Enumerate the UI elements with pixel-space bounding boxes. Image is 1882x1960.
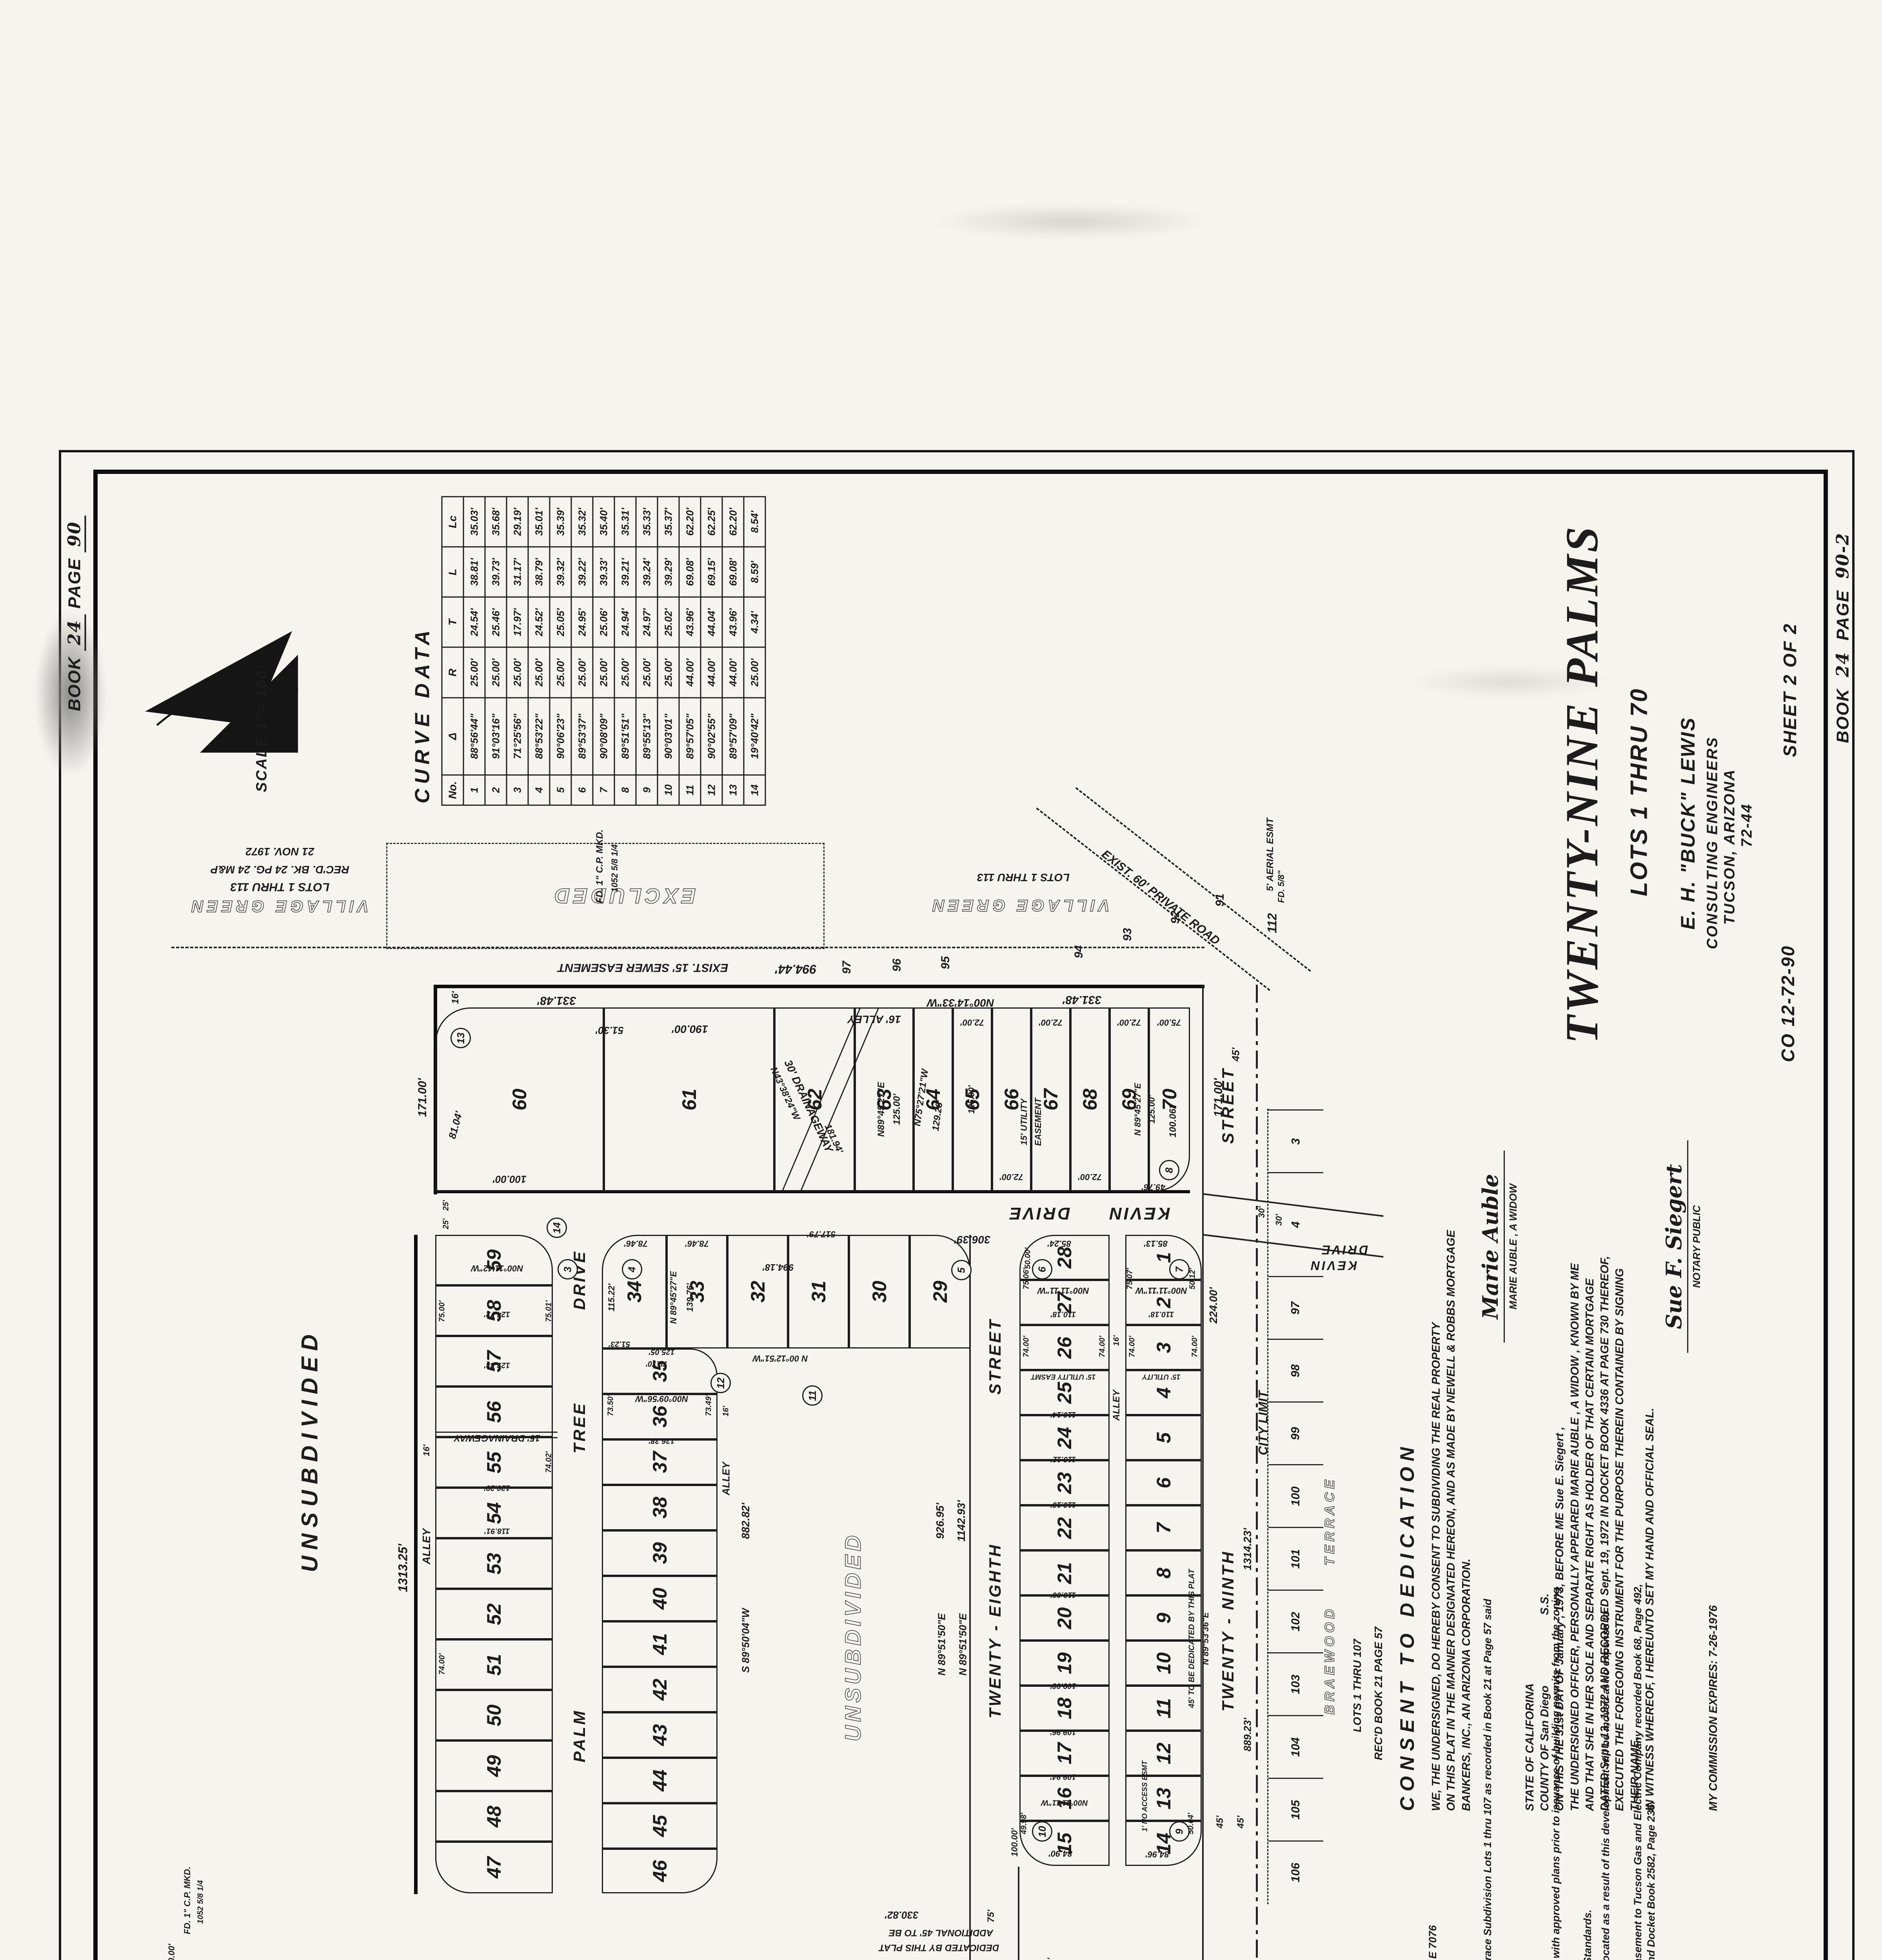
- map-label: 331.48': [1063, 993, 1102, 1006]
- map-label: N 89°53'36"E: [1201, 1612, 1211, 1665]
- map-label: CITY LIMIT: [1256, 1391, 1271, 1455]
- curve-table-row: 14 19°40'42" 25.00' 4.34' 8.59' 8.54': [744, 497, 765, 805]
- map-label: 51.23': [609, 1339, 630, 1348]
- book-label: BOOK: [65, 656, 84, 711]
- general-note-item: 2. ○ Indicates ½" steel pin set: [1444, 1584, 1458, 1960]
- map-label: REC'D. BK. 24 PG. 24 M&P: [211, 863, 349, 876]
- map-label: N 89°51'50"E: [957, 1613, 969, 1675]
- curve-marker: 11: [802, 1385, 823, 1406]
- map-label: 15' UTILITY EASMT: [1031, 1373, 1096, 1381]
- curve-marker: 8: [1159, 1160, 1179, 1180]
- map-label: 889.23': [1242, 1718, 1254, 1751]
- curve-delta: 89°57'05": [679, 698, 701, 775]
- general-note-item: 8. The Developer will pave streets to Pi…: [1581, 1584, 1595, 1960]
- curve-tangent: 24.94': [614, 597, 636, 647]
- signature-block-notary: Sue F. Siegert NOTARY PUBLIC: [1661, 1105, 1703, 1388]
- plat-subtitle-lots: LOTS 1 THRU 70: [1626, 688, 1653, 897]
- curve-length: 69.08': [722, 547, 744, 597]
- curve-length: 39.33': [593, 547, 614, 597]
- general-note-item: 4. Bearing based on the north line of Br…: [1481, 1584, 1508, 1960]
- map-label: TWENTY - EIGHTH: [986, 1543, 1005, 1719]
- curve-data-title: CURVE DATA: [411, 496, 434, 804]
- col-tangent: T: [442, 597, 463, 647]
- map-label: N00°11'11"W: [1041, 1798, 1088, 1807]
- curve-table-row: 3 71°25'56" 25.00' 17.97' 31.17' 29.19': [507, 497, 528, 805]
- owner-signature-handwritten: Marie Auble: [1478, 1151, 1505, 1343]
- curve-chord: 35.33': [636, 497, 658, 547]
- page-value-handwritten: 90-2: [1833, 527, 1855, 584]
- curve-no: 9: [636, 775, 658, 805]
- map-label: LOTS 1 THRU 113: [231, 880, 330, 893]
- book-label: BOOK: [1833, 688, 1853, 743]
- curve-marker-number: 4: [626, 1267, 638, 1272]
- map-label: 75.00': [1157, 1017, 1181, 1027]
- lot-number: 46: [649, 1860, 671, 1882]
- lot-number: 104: [1289, 1737, 1303, 1757]
- lot-number: 68: [1079, 1089, 1101, 1111]
- page-label: PAGE: [1833, 590, 1853, 641]
- map-label: 15' UTILITY: [1142, 1373, 1180, 1381]
- map-label: 50.12': [1188, 1268, 1197, 1290]
- curve-length: 69.08': [679, 547, 701, 597]
- lot-parcel: 47: [435, 1842, 553, 1893]
- curve-length: 38.79': [528, 547, 550, 597]
- lot-number: 41: [649, 1633, 671, 1655]
- curve-delta: 90°02'55": [701, 698, 722, 775]
- map-label: 16': [1112, 1335, 1121, 1346]
- lot-number: 40: [649, 1588, 671, 1610]
- curve-marker-number: 9: [1174, 1829, 1186, 1834]
- map-label: EASEMENT: [1033, 1098, 1043, 1146]
- lot-number: 29: [929, 1281, 952, 1303]
- map-label: 118.91': [485, 1526, 510, 1535]
- map-label: 124.72': [484, 1310, 510, 1319]
- map-label: 190.00': [672, 1023, 708, 1035]
- lot-parcel: 106: [1268, 1840, 1323, 1903]
- map-label: N00°11'11"W: [1037, 1285, 1089, 1296]
- curve-radius: 25.00': [463, 648, 485, 698]
- curve-tangent: 44.04': [701, 597, 722, 647]
- map-label: 30': [1274, 1214, 1284, 1226]
- map-label: ALLEY: [420, 1528, 433, 1564]
- lot-number: 97: [1289, 1301, 1303, 1314]
- lot-parcel: 31: [788, 1235, 849, 1348]
- curve-radius: 25.00': [744, 648, 765, 698]
- lot-parcel: 101: [1268, 1527, 1323, 1590]
- lot-parcel: 50: [435, 1690, 553, 1740]
- lot-number: 28: [1053, 1247, 1076, 1269]
- lot-number: 11: [1152, 1698, 1175, 1719]
- curve-chord: 35.39': [550, 497, 571, 547]
- lot-number: 50: [483, 1704, 505, 1726]
- lot-parcel: 49: [435, 1740, 553, 1791]
- curve-delta: 71°25'56": [507, 698, 528, 775]
- map-label: 1052 5/8 1/4: [196, 1880, 205, 1924]
- curve-table-row: 2 91°03'16" 25.00' 25.46' 39.73' 35.68': [485, 497, 507, 805]
- curve-tangent: 24.97': [636, 597, 658, 647]
- map-label: 126.38': [649, 1436, 675, 1445]
- curve-chord: 62.20': [679, 497, 701, 547]
- lot-number: 53: [483, 1553, 505, 1575]
- map-label: N 89°45'27"E: [1133, 1083, 1143, 1136]
- lot-number: 105: [1289, 1800, 1303, 1819]
- lot-parcel: 55: [435, 1437, 553, 1488]
- map-label: ADDITIONAL 45' TO BE: [889, 1927, 993, 1938]
- map-label: 74.00': [1098, 1336, 1107, 1357]
- map-label: 72.00': [961, 1017, 984, 1027]
- map-label: 45' TO BE DEDICATED BY THIS PLAT: [1188, 1569, 1197, 1708]
- map-label: VILLAGE GREEN: [929, 896, 1110, 915]
- lot-parcel: 30: [849, 1235, 910, 1348]
- book-page-stamp-right: BOOK 24 PAGE 90-2: [1833, 527, 1853, 743]
- map-label: 30': [1046, 1958, 1055, 1960]
- map-label: 110.18': [1051, 1310, 1076, 1319]
- map-label: 517.79': [807, 1229, 836, 1239]
- lot-parcel: 7: [1125, 1505, 1202, 1550]
- notary-signature-handwritten: Sue F. Siegert: [1661, 1140, 1688, 1352]
- lot-parcel: 103: [1268, 1652, 1323, 1715]
- lot-number: 22: [1053, 1517, 1076, 1539]
- map-label: 100.00': [167, 1944, 177, 1960]
- lot-parcel: 69: [1110, 1007, 1149, 1192]
- lot-number: 10: [1152, 1652, 1175, 1674]
- curve-data-table: No. Δ R T L Lc 1 88°56'44" 25.00' 24.54'…: [441, 496, 766, 806]
- curve-no: 1: [463, 775, 485, 805]
- map-label: EXCLUDED: [551, 884, 696, 908]
- plat-sheet: BOOK 24 PAGE 90 BOOK 24 PAGE 90-2 SCALE …: [0, 0, 1882, 1960]
- curve-marker: 6: [1032, 1259, 1052, 1279]
- map-label: 16': [421, 1445, 432, 1456]
- curve-tangent: 25.06': [593, 597, 614, 647]
- map-label: 139.76': [685, 1283, 695, 1312]
- curve-delta: 88°56'44": [463, 698, 485, 775]
- lot-number: 47: [483, 1857, 505, 1878]
- curve-table-row: 7 90°08'09" 25.00' 25.06' 39.33' 35.40': [593, 497, 614, 805]
- curve-length: 39.22': [571, 547, 593, 597]
- lot-number: 30: [868, 1281, 891, 1303]
- map-label: 72.00': [1000, 1172, 1023, 1182]
- map-label: S 89°50'04"W: [740, 1608, 752, 1673]
- curve-marker: 12: [710, 1373, 731, 1393]
- lot-number: 5: [1152, 1432, 1175, 1443]
- map-label: 16': [450, 991, 461, 1004]
- curve-chord: 62.20': [722, 497, 744, 547]
- map-label: 93: [1121, 928, 1134, 941]
- map-label: TWENTY - NINTH: [1219, 1550, 1237, 1711]
- curve-delta: 91°03'16": [485, 698, 507, 775]
- general-notes-heading: GENERAL NOTES: [1396, 1584, 1417, 1960]
- curve-chord: 29.19': [507, 497, 528, 547]
- map-label: BRAEWOOD: [1322, 1606, 1338, 1715]
- lot-parcel: 48: [435, 1791, 553, 1842]
- curve-tangent: 24.95': [571, 597, 593, 647]
- page-value-handwritten: 90: [65, 516, 86, 552]
- lot-number: 34: [623, 1281, 646, 1303]
- curve-marker: 14: [547, 1218, 567, 1238]
- map-label: 75.06': [1022, 1268, 1031, 1290]
- map-label: 74.00': [1022, 1336, 1031, 1357]
- map-label: 15' DRAINAGEWAY: [454, 1432, 540, 1443]
- general-note-item: 6. Miles of new streets = 0.95 mile: [1531, 1584, 1544, 1960]
- curve-tangent: 17.97': [507, 597, 528, 647]
- curve-length: 39.24': [636, 547, 658, 597]
- lot-number: 9: [1152, 1613, 1175, 1624]
- book-value-handwritten: 24: [65, 614, 86, 651]
- lot-number: 19: [1053, 1652, 1076, 1674]
- lot-parcel: 29: [910, 1235, 970, 1348]
- curve-no: 3: [507, 775, 528, 805]
- lot-number: 37: [649, 1451, 671, 1473]
- map-label: 94: [1072, 945, 1086, 958]
- map-label: STREET: [1219, 1067, 1237, 1144]
- map-label: 73.50': [607, 1395, 616, 1416]
- curve-radius: 25.00': [485, 648, 507, 698]
- lot-parcel: 100: [1268, 1464, 1323, 1527]
- col-delta: Δ: [442, 698, 463, 775]
- lot-parcel: 44: [602, 1758, 718, 1803]
- curve-table-row: 12 90°02'55" 44.00' 44.04' 69.15' 62.25': [701, 497, 722, 805]
- curve-marker-number: 12: [714, 1377, 727, 1389]
- lot-parcel: 45: [602, 1803, 718, 1849]
- map-label: 100.00': [1010, 1828, 1020, 1857]
- curve-marker: 4: [622, 1259, 642, 1279]
- curve-data-block: CURVE DATA No. Δ R T L Lc 1 88°56'44" 25…: [411, 496, 797, 806]
- map-label: 123.33': [484, 1361, 510, 1370]
- lot-number: 43: [649, 1724, 671, 1746]
- curve-table-row: 13 89°57'09" 44.00' 43.96' 69.08' 62.20': [722, 497, 744, 805]
- engineer-city: TUCSON, ARIZONA: [1722, 769, 1738, 925]
- lot-number: 2: [1152, 1297, 1175, 1308]
- lot-parcel: 32: [727, 1235, 788, 1348]
- lot-parcel: 22: [1019, 1505, 1110, 1550]
- map-label: KEVIN: [1108, 1203, 1170, 1223]
- scan-smudge: [933, 204, 1208, 239]
- curve-marker-number: 5: [956, 1267, 968, 1273]
- curve-length: 39.32': [550, 547, 571, 597]
- lot-parcel: 51: [435, 1639, 553, 1690]
- curve-no: 10: [658, 775, 679, 805]
- lot-parcel: 17: [1019, 1731, 1110, 1776]
- curve-radius: 25.00': [550, 648, 571, 698]
- map-label: 100.00': [493, 1173, 527, 1185]
- map-label: N00°11'42"W: [471, 1263, 523, 1273]
- lot-number: 24: [1053, 1427, 1076, 1449]
- map-label: LOTS 1 THRU 113: [977, 871, 1070, 884]
- map-label: 25': [442, 1200, 451, 1210]
- map-label: 109.98': [1050, 1681, 1076, 1690]
- lot-number: 32: [747, 1281, 769, 1303]
- curve-no: 5: [550, 775, 571, 805]
- map-label: 75.00': [438, 1301, 447, 1322]
- lot-parcel: 104: [1268, 1715, 1323, 1778]
- map-label: 125.00': [966, 1085, 977, 1114]
- map-label: 75.07': [1126, 1268, 1135, 1290]
- map-label: 78.46': [685, 1238, 709, 1249]
- lot-number: 8: [1152, 1568, 1175, 1579]
- map-label: 125.00': [892, 1094, 903, 1125]
- curve-table-header-row: No. Δ R T L Lc: [442, 497, 463, 805]
- curve-chord: 35.40': [593, 497, 614, 547]
- curve-radius: 25.00': [614, 648, 636, 698]
- general-note-item: 3. ② Indicates curve, see curve data: [1462, 1584, 1476, 1960]
- curve-marker: 7: [1169, 1259, 1190, 1279]
- map-label: REC'D BOOK 21 PAGE 57: [1372, 1627, 1385, 1760]
- curve-tangent: 24.52': [528, 597, 550, 647]
- curve-marker: 3: [558, 1259, 578, 1279]
- lot-parcel: 20: [1019, 1595, 1110, 1641]
- lot-parcel: 23: [1019, 1460, 1110, 1505]
- map-label: DRIVE: [1008, 1203, 1070, 1223]
- curve-chord: 35.01': [528, 497, 550, 547]
- col-radius: R: [442, 648, 463, 698]
- map-label: 125.05': [649, 1347, 675, 1356]
- lot-parcel: 98: [1268, 1339, 1323, 1401]
- map-label: N00°14'33"W: [927, 996, 994, 1009]
- map-label: 84.90': [1049, 1848, 1072, 1858]
- lot-number: 3: [1289, 1138, 1303, 1145]
- lot-parcel: 18: [1019, 1686, 1110, 1731]
- plat-title: TWENTY-NINE PALMS: [1555, 524, 1609, 1044]
- map-line: [1202, 985, 1204, 1960]
- lot-parcel: 39: [602, 1530, 718, 1576]
- lot-parcel: 41: [602, 1621, 718, 1667]
- map-label: 50.00': [1024, 1248, 1033, 1269]
- curve-no: 13: [722, 775, 744, 805]
- curve-chord: 35.31': [614, 497, 636, 547]
- map-label: DEDICATED BY THIS PLAT: [879, 1942, 999, 1953]
- curve-marker-number: 13: [454, 1033, 467, 1044]
- lot-parcel: 102: [1268, 1590, 1323, 1652]
- curve-radius: 25.00': [593, 648, 614, 698]
- lot-number: 39: [649, 1542, 671, 1564]
- lot-number: 1: [1152, 1252, 1175, 1263]
- curve-table-row: 4 88°53'22" 25.00' 24.52' 38.79' 35.01': [528, 497, 550, 805]
- map-label: 109.94': [1050, 1772, 1076, 1781]
- map-label: 72.00': [1039, 1017, 1063, 1027]
- curve-radius: 25.00': [658, 648, 679, 698]
- curve-delta: 89°55'13": [636, 698, 658, 775]
- map-label: N00°11'11"W: [1135, 1285, 1187, 1296]
- map-label: 224.00': [1207, 1287, 1220, 1323]
- curve-marker-number: 3: [562, 1267, 574, 1272]
- note-text: Bearing based on the north line of Braew…: [1481, 1584, 1508, 1960]
- map-label: 109.96': [1050, 1728, 1076, 1737]
- col-length: L: [442, 547, 463, 597]
- map-label: 74.00': [1191, 1336, 1200, 1357]
- lot-parcel: 52: [435, 1589, 553, 1639]
- lot-parcel: 26: [1019, 1325, 1110, 1370]
- map-label: FD. 1" C.P. MKD.: [182, 1867, 193, 1935]
- curve-delta: 89°51'51": [614, 698, 636, 775]
- signature-block-owner: Marie Auble MARIE AUBLE , A WIDOW: [1478, 1105, 1519, 1388]
- lot-parcel: 42: [602, 1667, 718, 1712]
- map-label: DRIVE: [1320, 1243, 1368, 1257]
- co-number: CO 12-72-90: [1777, 945, 1798, 1062]
- lot-number: 6: [1152, 1477, 1175, 1488]
- lot-number: 18: [1053, 1697, 1076, 1719]
- curve-chord: 35.37': [658, 497, 679, 547]
- map-label: 45': [1235, 1816, 1246, 1828]
- curve-delta: 88°53'22": [528, 698, 550, 775]
- map-label: 331.48': [538, 994, 576, 1007]
- curve-marker-number: 11: [807, 1390, 819, 1401]
- curve-delta: 89°57'09": [722, 698, 744, 775]
- curve-no: 4: [528, 775, 550, 805]
- general-notes-block: GENERAL NOTES 1. △ Indicates standard su…: [1396, 1584, 1733, 1960]
- lot-number: 51: [483, 1654, 505, 1676]
- lot-parcel: 99: [1268, 1401, 1323, 1464]
- curve-no: 6: [571, 775, 593, 805]
- map-line: [414, 1235, 418, 1894]
- map-label: LOTS 1 THRU 107: [1351, 1639, 1364, 1732]
- curve-radius: 44.00': [679, 648, 701, 698]
- curve-tangent: 25.46': [485, 597, 507, 647]
- page-label: PAGE: [65, 558, 84, 608]
- lot-number: 4: [1289, 1221, 1303, 1228]
- lot-parcel: 38: [602, 1485, 718, 1530]
- curve-delta: 19°40'42": [744, 698, 765, 775]
- lot-number: 17: [1053, 1742, 1076, 1764]
- curve-length: 8.59': [744, 547, 765, 597]
- curve-marker-number: 14: [550, 1222, 563, 1234]
- map-label: 45': [1230, 1047, 1242, 1061]
- curve-no: 2: [485, 775, 507, 805]
- north-arrow-icon: [141, 627, 306, 815]
- curve-radius: 25.00': [571, 648, 593, 698]
- lot-number: 45: [649, 1815, 671, 1837]
- map-label: 79.70': [646, 1359, 668, 1368]
- curve-marker: 10: [1032, 1821, 1052, 1842]
- lot-parcel: 21: [1019, 1550, 1110, 1595]
- map-label: 110.10': [1051, 1500, 1076, 1509]
- map-label: 110.14': [1051, 1410, 1076, 1419]
- map-label: 92: [1169, 911, 1182, 924]
- map-label: 78.46': [624, 1238, 648, 1249]
- curve-length: 38.81': [463, 547, 485, 597]
- curve-tangent: 4.34': [744, 597, 765, 647]
- curve-radius: 44.00': [722, 648, 744, 698]
- curve-tangent: 43.96': [679, 597, 701, 647]
- curve-marker: 5: [951, 1260, 972, 1280]
- map-label: N 89°45'27"E: [669, 1271, 679, 1324]
- map-label: 97: [840, 961, 854, 974]
- scale-label: SCALE 1"= 100': [254, 664, 271, 792]
- map-label: 95: [939, 956, 952, 969]
- map-label: 15' UTILITY: [1019, 1099, 1029, 1145]
- curve-no: 7: [593, 775, 614, 805]
- lot-number: 103: [1289, 1674, 1303, 1694]
- map-label: 74.02': [545, 1452, 554, 1473]
- map-label: 5' AERIAL ESMT: [1265, 818, 1276, 891]
- map-label: TERRACE: [1322, 1476, 1338, 1565]
- curve-marker-number: 8: [1163, 1167, 1175, 1173]
- map-label: N89°45'27"E: [876, 1082, 887, 1137]
- curve-delta: 90°03'01": [658, 698, 679, 775]
- map-label: 21 NOV. 1972: [246, 845, 314, 858]
- lot-number: 25: [1053, 1382, 1076, 1404]
- curve-chord: 35.68': [485, 497, 507, 547]
- lot-number: 55: [483, 1452, 505, 1474]
- map-label: 1313.25': [396, 1544, 411, 1592]
- book-page-stamp-top-left: BOOK 24 PAGE 90: [65, 516, 85, 711]
- lot-number: 98: [1289, 1364, 1303, 1377]
- curve-marker: 13: [451, 1028, 471, 1048]
- lot-parcel: 56: [435, 1387, 553, 1437]
- lot-number: 4: [1152, 1387, 1175, 1398]
- lot-number: 38: [649, 1497, 671, 1519]
- map-label: TREE: [570, 1402, 589, 1454]
- map-label: 112: [1265, 913, 1280, 933]
